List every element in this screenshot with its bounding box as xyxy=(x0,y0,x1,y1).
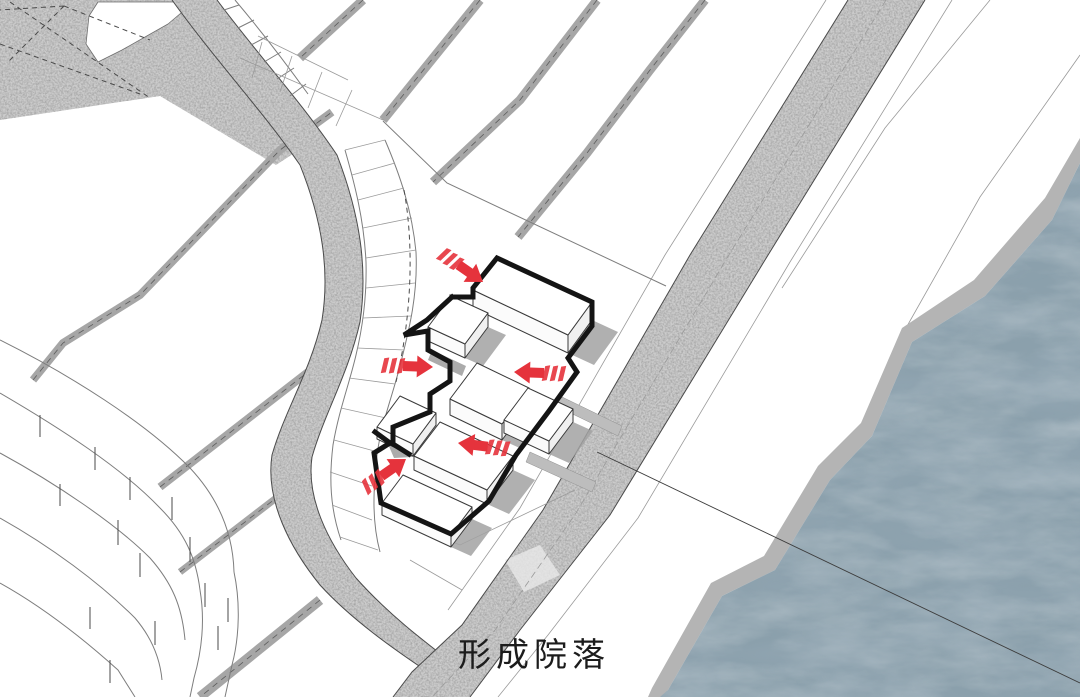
caption-label: 形成院落 xyxy=(458,635,610,674)
site-plan-diagram: 形成院落 xyxy=(0,0,1080,697)
diagram-canvas: 形成院落 xyxy=(0,0,1080,697)
